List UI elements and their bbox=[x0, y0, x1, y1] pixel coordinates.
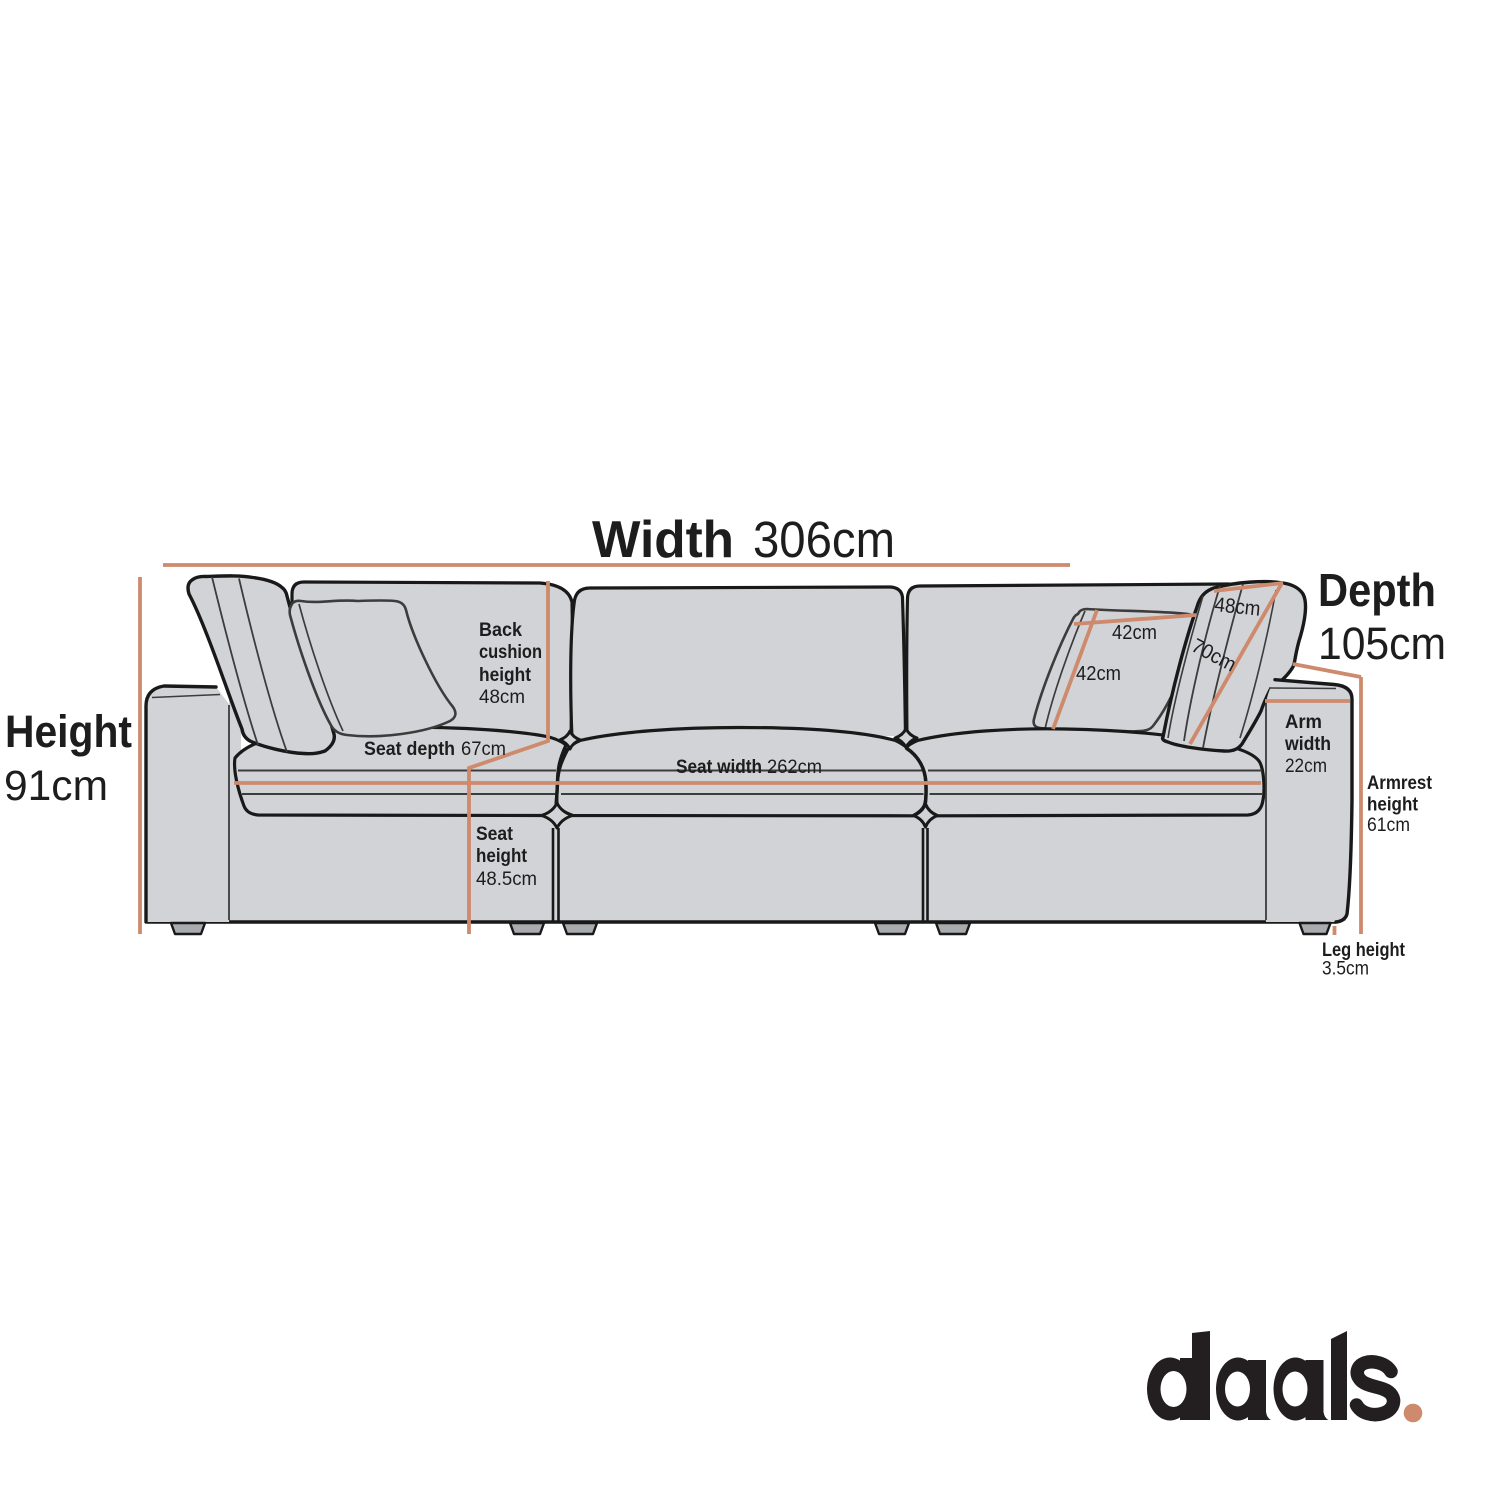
svg-text:61cm: 61cm bbox=[1367, 814, 1410, 836]
svg-text:Arm: Arm bbox=[1285, 711, 1322, 733]
svg-text:Seat width: Seat width bbox=[676, 756, 762, 778]
svg-text:height: height bbox=[1367, 794, 1418, 816]
svg-text:67cm: 67cm bbox=[461, 738, 506, 760]
svg-text:42cm: 42cm bbox=[1076, 662, 1121, 685]
svg-text:Seat: Seat bbox=[476, 823, 513, 845]
svg-text:Height: Height bbox=[5, 706, 132, 757]
svg-text:height: height bbox=[479, 664, 531, 686]
svg-text:262cm: 262cm bbox=[767, 756, 822, 778]
svg-text:Width: Width bbox=[592, 511, 734, 569]
svg-text:48cm: 48cm bbox=[1213, 593, 1261, 621]
svg-text:48cm: 48cm bbox=[479, 686, 525, 708]
svg-text:Armrest: Armrest bbox=[1367, 772, 1432, 794]
svg-text:Seat depth: Seat depth bbox=[364, 738, 455, 760]
svg-text:42cm: 42cm bbox=[1112, 621, 1157, 644]
svg-text:306cm: 306cm bbox=[753, 511, 895, 568]
svg-text:22cm: 22cm bbox=[1285, 755, 1327, 777]
svg-text:width: width bbox=[1284, 733, 1331, 755]
svg-text:105cm: 105cm bbox=[1318, 618, 1446, 669]
svg-text:Depth: Depth bbox=[1318, 564, 1436, 616]
svg-text:height: height bbox=[476, 845, 527, 867]
svg-text:48.5cm: 48.5cm bbox=[476, 868, 537, 890]
svg-text:cushion: cushion bbox=[479, 641, 542, 663]
svg-text:Back: Back bbox=[479, 619, 522, 641]
svg-text:91cm: 91cm bbox=[4, 762, 108, 810]
svg-text:3.5cm: 3.5cm bbox=[1322, 958, 1369, 980]
